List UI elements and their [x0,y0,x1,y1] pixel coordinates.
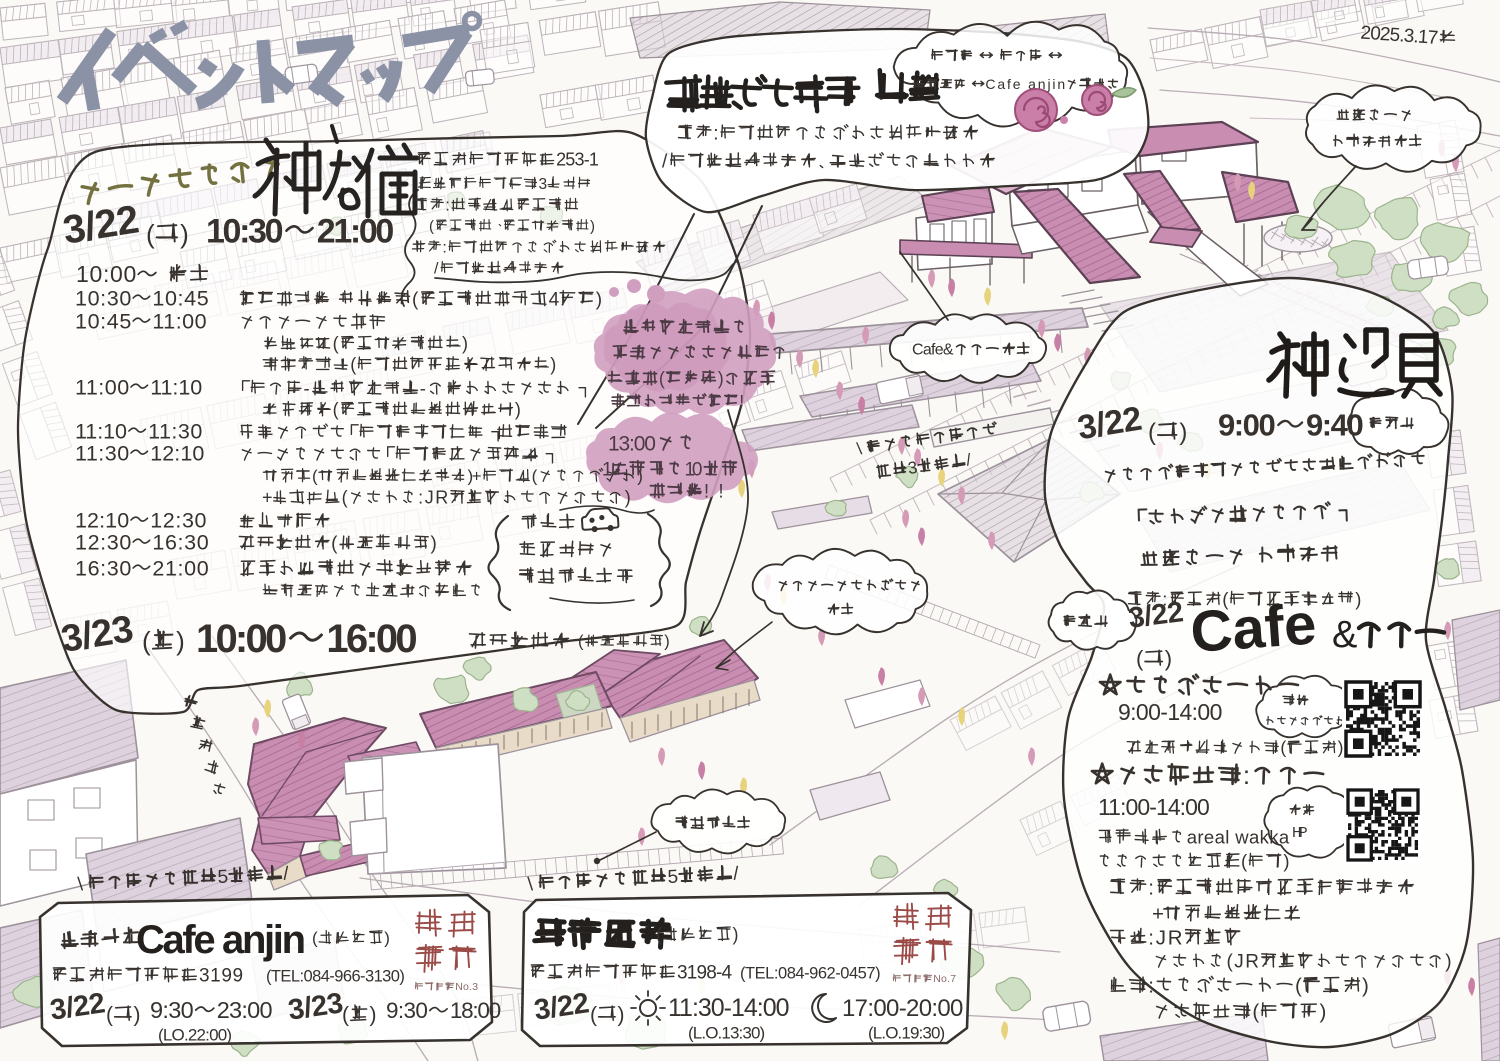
svg-text:3198-4: 3198-4 [677,963,733,984]
svg-text:(: ( [342,488,348,508]
svg-text:11:30: 11:30 [75,441,129,465]
svg-text:(LO.22:00): (LO.22:00) [158,1026,232,1045]
svg-text:Cafe&: Cafe& [912,342,954,359]
svg-text:12:10: 12:10 [75,508,129,532]
svg-text:10:30: 10:30 [75,286,131,310]
svg-text:No.7: No.7 [933,973,956,985]
svg-text:(: ( [1241,851,1248,872]
svg-text:): ) [596,290,602,311]
svg-text:): ) [550,355,556,375]
svg-text:): ) [431,534,437,555]
svg-text:(TEL:084-962-0457): (TEL:084-962-0457) [740,965,881,983]
svg-text:(: ( [532,467,538,486]
svg-text:): ) [625,488,631,508]
svg-text:): ) [384,929,390,948]
svg-text:1: 1 [602,460,613,481]
svg-text:): ) [1179,419,1187,446]
svg-text:9:00-14:00: 9:00-14:00 [1118,699,1222,725]
svg-text::JR: :JR [418,488,448,508]
svg-text:16:00: 16:00 [326,617,417,661]
svg-text:13:00: 13:00 [608,432,656,455]
svg-text:): ) [618,1003,625,1026]
svg-text:&: & [1332,614,1357,656]
svg-text:): ) [1320,1000,1327,1023]
svg-text:5: 5 [217,867,229,889]
svg-text:9:40: 9:40 [1306,408,1364,443]
svg-text::: : [1243,760,1250,790]
svg-text:(: ( [1148,419,1156,446]
svg-text:17:00-20:00: 17:00-20:00 [842,995,963,1022]
svg-text:10:45: 10:45 [75,309,131,333]
svg-text:(JR: (JR [1227,952,1260,973]
svg-text:): ) [718,369,724,389]
svg-text:/: / [662,152,668,173]
svg-text:): ) [1165,646,1172,671]
svg-text:5: 5 [667,867,679,889]
svg-text:11:30-14:00: 11:30-14:00 [668,994,790,1022]
svg-text:(: ( [333,400,339,420]
svg-text:)+: )+ [468,467,482,486]
svg-text:10:00: 10:00 [76,261,136,287]
svg-text:3: 3 [539,176,548,193]
svg-text:(TEL:084-966-3130): (TEL:084-966-3130) [266,968,405,986]
svg-text:): ) [370,1003,377,1026]
svg-text:HP: HP [1292,824,1308,841]
svg-text::JR: :JR [1148,926,1182,949]
svg-text:): ) [462,334,468,354]
svg-text:21:00: 21:00 [317,212,395,250]
svg-text:-: - [420,378,426,399]
svg-text:(: ( [142,626,151,656]
svg-text:!: ! [739,393,744,411]
svg-text:10: 10 [685,460,703,481]
svg-text:(: ( [656,925,662,945]
svg-text:10:30: 10:30 [206,212,284,250]
svg-text:10:45: 10:45 [152,286,208,310]
svg-text:+: + [262,488,273,508]
svg-text:16:30: 16:30 [152,530,208,554]
svg-text:): ) [590,218,595,235]
svg-text:-: - [304,378,310,399]
svg-text:9:00: 9:00 [1218,408,1276,443]
svg-text:): ) [733,925,739,945]
svg-text:(: ( [1252,1000,1259,1023]
svg-text:11:30: 11:30 [148,419,202,443]
svg-text:/: / [434,261,439,278]
svg-text:4: 4 [549,290,560,311]
svg-text:No.3: No.3 [455,981,478,993]
svg-text:9:30: 9:30 [386,998,428,1023]
svg-text::: : [445,197,450,215]
svg-text:(: ( [106,1003,113,1026]
svg-text:12:30: 12:30 [75,530,131,554]
svg-text:(: ( [146,219,155,249]
svg-text:(L.O.19:30): (L.O.19:30) [868,1024,945,1043]
svg-text:11:10: 11:10 [150,375,202,399]
svg-text:(L.O.13:30): (L.O.13:30) [688,1024,765,1043]
svg-text:(: ( [578,633,584,651]
svg-text:): ) [1355,589,1361,610]
svg-text:11:00-14:00: 11:00-14:00 [1098,794,1210,820]
svg-text::: : [1148,974,1154,997]
svg-text:21:00: 21:00 [152,556,208,580]
svg-text:23:00: 23:00 [217,997,273,1023]
svg-text:3199: 3199 [199,966,243,987]
svg-text:12:30: 12:30 [150,508,206,532]
svg-text:): ) [1283,851,1289,872]
svg-text:253-1: 253-1 [556,150,599,170]
svg-text:Cafe anjin: Cafe anjin [136,918,306,962]
svg-text:): ) [515,400,521,420]
svg-text:(: ( [1136,646,1144,671]
svg-text:(: ( [342,1003,349,1026]
svg-text:): ) [180,219,189,249]
svg-text:+: + [1152,902,1164,925]
svg-text:(: ( [429,218,434,235]
svg-text:areal wakka: areal wakka [1187,827,1290,848]
svg-text:3/22: 3/22 [1127,596,1186,634]
svg-text:11:00: 11:00 [152,309,206,333]
svg-text:(: ( [1295,974,1302,997]
svg-text:11:00: 11:00 [75,375,129,399]
svg-text:): ) [1362,974,1369,997]
svg-text:(: ( [1280,738,1286,758]
svg-text:): ) [176,626,185,656]
svg-text:16:30: 16:30 [75,556,131,580]
svg-text:(: ( [312,467,318,486]
svg-text:): ) [1445,952,1451,973]
svg-text:10:00: 10:00 [196,617,287,661]
svg-text:(: ( [412,290,419,311]
svg-text:(: ( [590,1003,597,1026]
svg-text::: : [1148,876,1154,899]
svg-text::: : [442,240,446,257]
svg-text:(: ( [659,369,665,389]
svg-text:9:30: 9:30 [150,997,194,1023]
svg-text:Cafe: Cafe [1188,591,1318,665]
svg-text:12:10: 12:10 [150,441,204,465]
svg-text:): ) [134,1003,141,1026]
svg-text:(: ( [333,334,339,354]
svg-text:): ) [1338,738,1344,758]
svg-text:11:10: 11:10 [75,419,127,443]
svg-text:): ) [664,633,670,651]
svg-text:(: ( [350,355,356,375]
svg-text::: : [713,124,718,145]
svg-text:Cafe anjin: Cafe anjin [985,76,1065,92]
svg-text:(: ( [312,929,318,948]
svg-text:18:00: 18:00 [450,998,501,1023]
svg-text:(: ( [331,534,338,555]
